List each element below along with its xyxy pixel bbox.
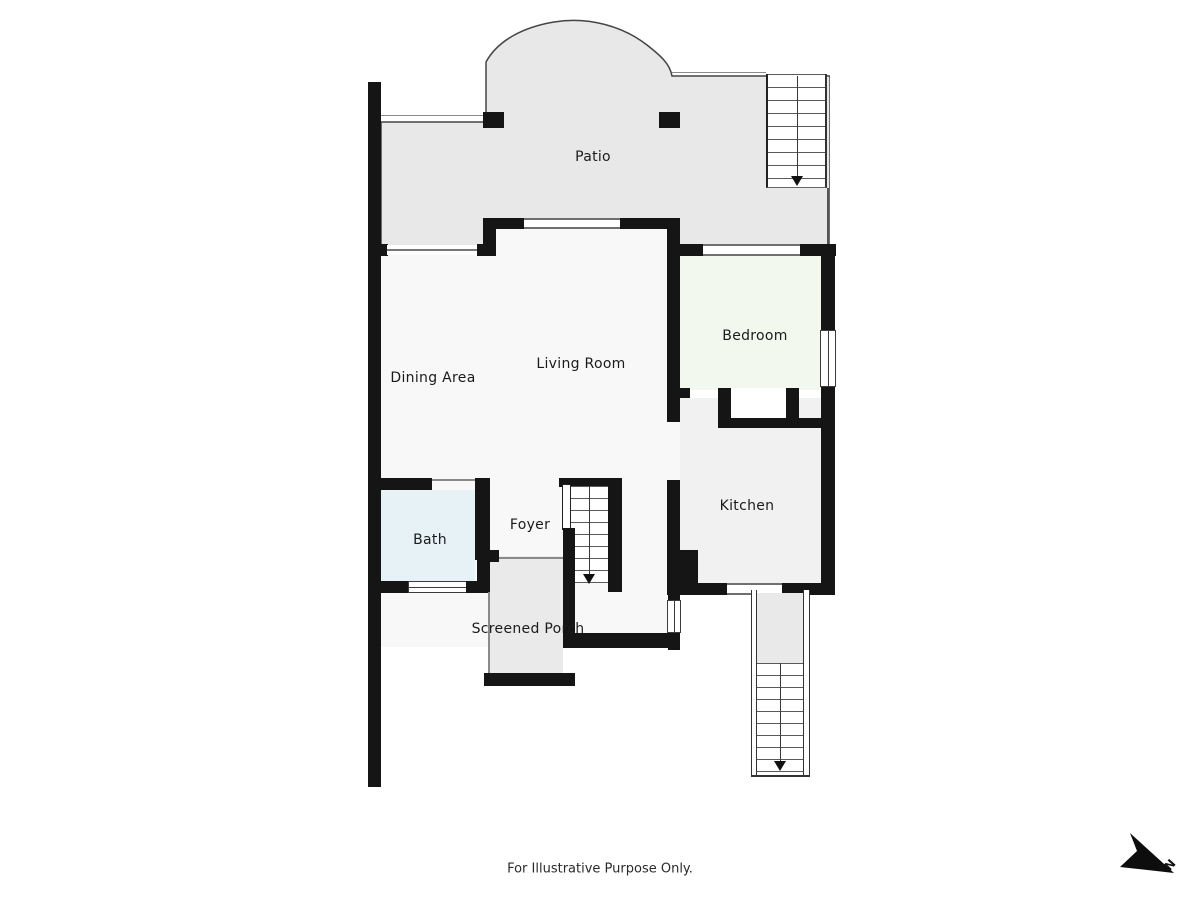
staircase-interior-down-arrow-icon: [583, 574, 595, 584]
staircase-rear-rail-right: [803, 590, 810, 777]
wall-living-kitchen: [667, 480, 680, 552]
bath-door-header: [432, 479, 475, 481]
dining-window-line: [387, 249, 478, 251]
wall-porch-left: [477, 560, 490, 592]
wall-bedroom-bottom: [667, 388, 690, 398]
bedroom-sliding-door: [703, 244, 800, 256]
patio-outline: [381, 18, 830, 250]
label-bedroom: Bedroom: [722, 328, 787, 344]
staircase-interior-rail: [562, 484, 571, 530]
patio-shape: [381, 20, 830, 250]
closet-stub-left: [718, 388, 731, 422]
label-patio: Patio: [575, 149, 611, 165]
bedroom-window: [820, 330, 836, 387]
bedroom-floor: [680, 247, 821, 390]
label-bath: Bath: [413, 532, 447, 548]
closet-stub-right: [786, 388, 799, 422]
patio-parapet-line-left: [381, 115, 486, 116]
staircase-rear-landing: [757, 593, 803, 663]
patio-parapet-line-right: [672, 72, 766, 73]
wall-left-exterior: [368, 82, 381, 787]
staircase-rear-bottom-cap: [751, 775, 810, 777]
wall-hall-bottom: [575, 633, 680, 648]
staircase-patio-down-arrow-icon: [791, 176, 803, 186]
hall-window: [667, 600, 681, 633]
wall-bath-right: [475, 478, 490, 560]
wall-stairwell-right: [608, 483, 622, 592]
staircase-rear-guide: [780, 663, 781, 763]
wall-bath-bottom-left: [368, 581, 410, 593]
living-room-bump-floor: [496, 229, 667, 250]
label-living: Living Room: [536, 356, 625, 372]
patio-right-edge: [827, 188, 829, 246]
porch-floor: [488, 556, 563, 673]
floor-plan: Patio Dining Area Living Room Bedroom Ki…: [0, 0, 1200, 900]
label-porch: Screened Porch: [472, 621, 585, 637]
label-dining: Dining Area: [390, 370, 475, 386]
column-left: [483, 112, 504, 128]
wall-stub-dining-right: [477, 244, 496, 256]
bath-window: [408, 581, 468, 593]
staircase-patio-guide: [797, 76, 798, 176]
porch-screen-top: [499, 557, 563, 559]
wall-stub-dining-left: [368, 244, 388, 256]
staircase-interior-guide: [589, 486, 590, 576]
wall-porch-bottom: [484, 673, 575, 686]
wall-bedroom-top-right: [800, 244, 836, 256]
disclaimer-text: For Illustrative Purpose Only.: [507, 862, 693, 877]
wall-closet-bottom: [718, 418, 835, 428]
wall-bump-top-left: [483, 218, 524, 229]
wall-bath-top-left: [368, 478, 432, 490]
wall-kitchen-bottom-left: [690, 583, 727, 595]
wall-bedroom-top-left: [667, 244, 703, 256]
staircase-rear-down-arrow-icon: [774, 761, 786, 771]
label-kitchen: Kitchen: [720, 498, 775, 514]
label-foyer: Foyer: [510, 517, 550, 533]
patio-sliding-door: [524, 218, 620, 229]
column-right: [659, 112, 680, 128]
